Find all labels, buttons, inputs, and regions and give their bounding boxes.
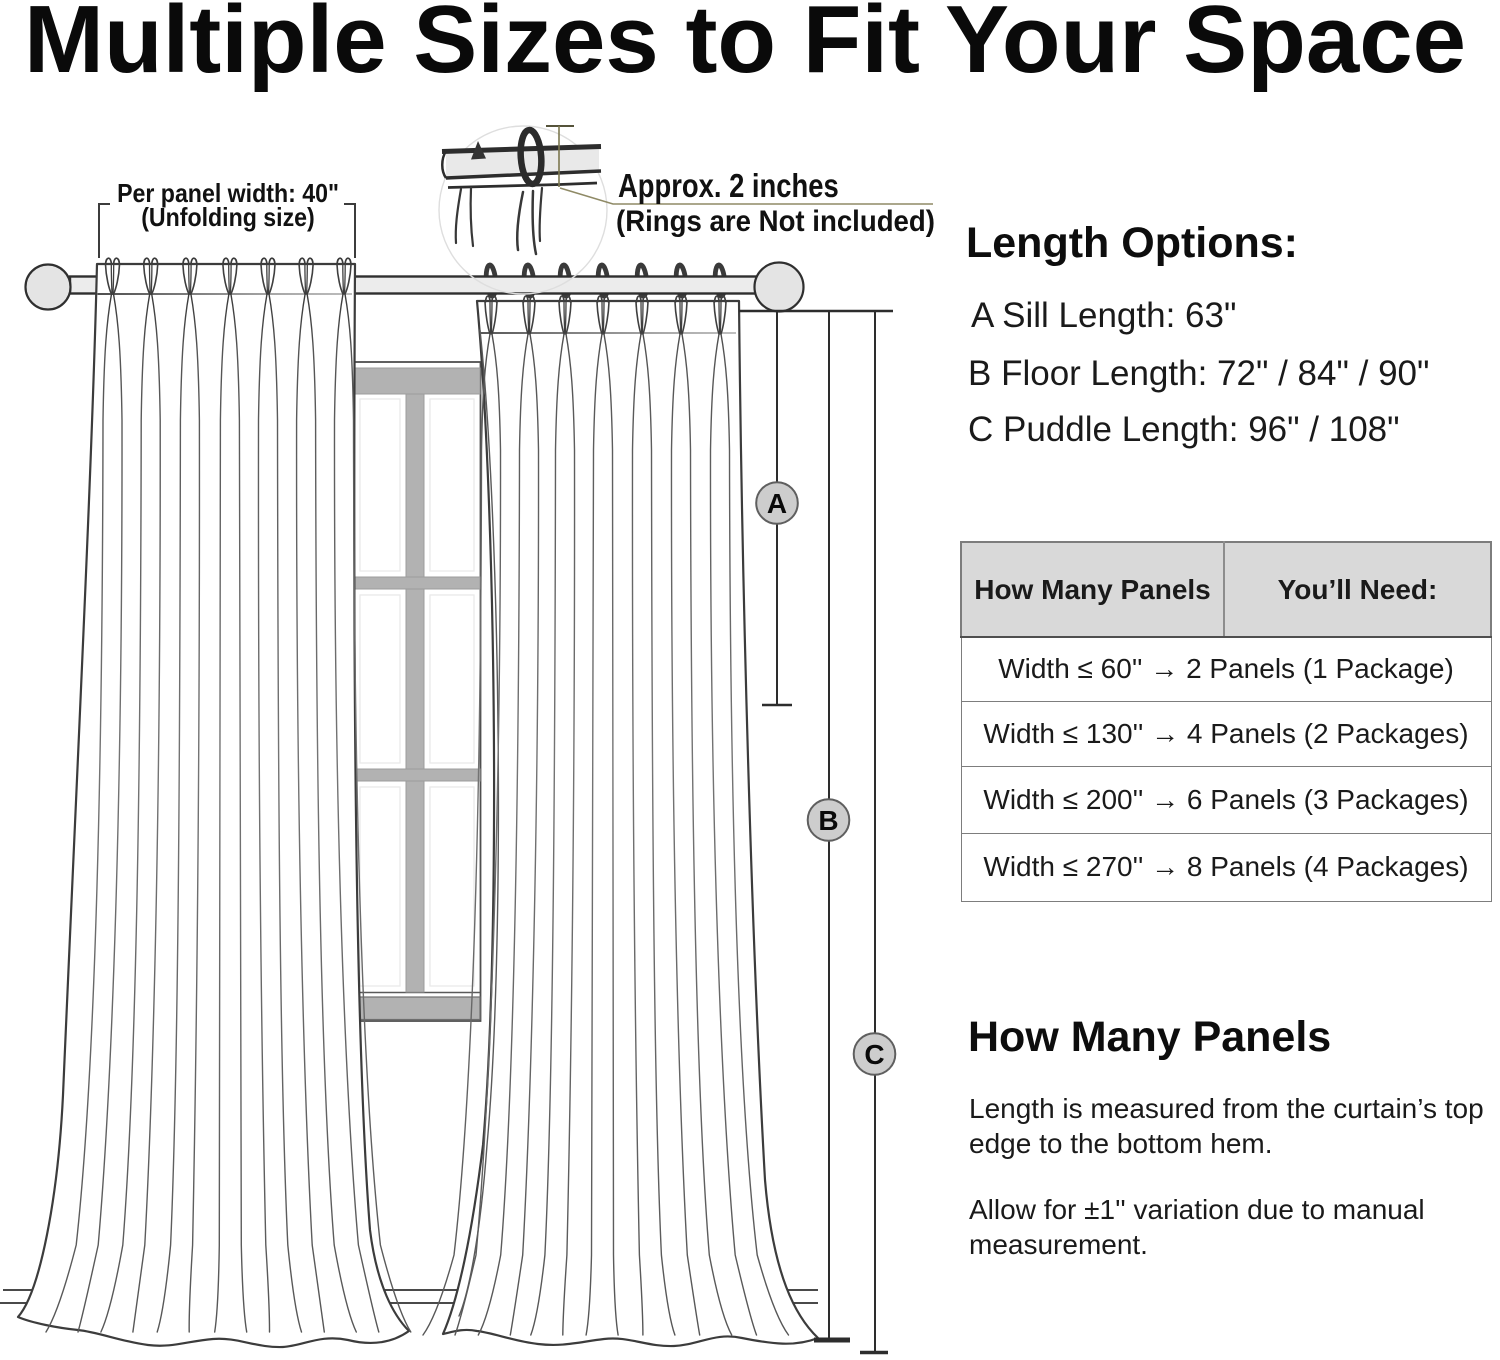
svg-text:C: C bbox=[864, 1039, 884, 1070]
svg-text:A: A bbox=[767, 488, 787, 519]
svg-text:B: B bbox=[818, 805, 838, 836]
